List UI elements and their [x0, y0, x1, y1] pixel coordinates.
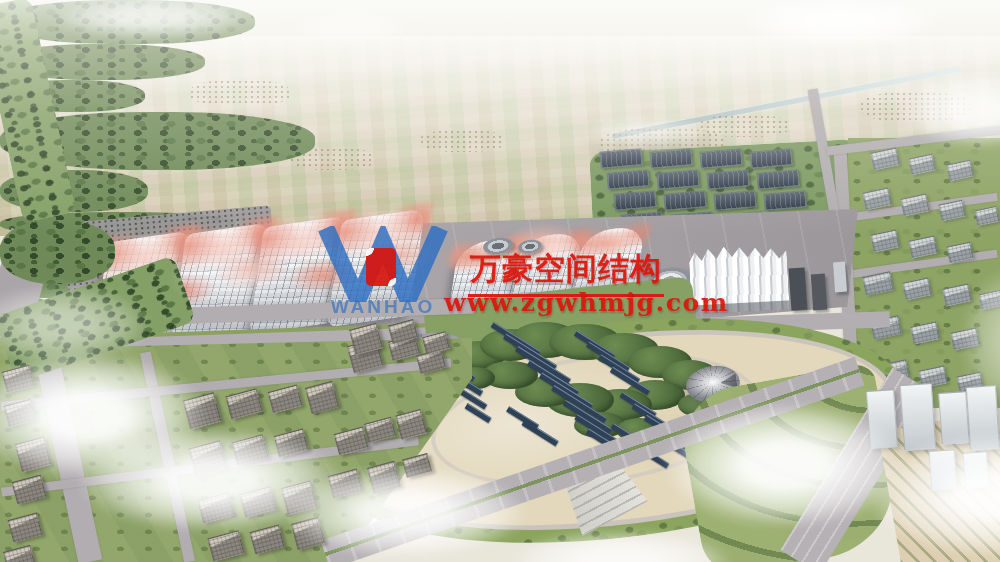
watermark-url-text: www.zgwhmjg.com — [444, 288, 729, 317]
annex-building — [833, 262, 847, 293]
wanhao-logo-watermark: WANHAO — [318, 226, 448, 322]
annex-building — [811, 274, 827, 311]
logo-emblem-icon — [366, 248, 396, 286]
logo-letters: WANHAO — [318, 296, 448, 318]
aerial-masterplan-render: WANHAO 万豪空间结构 www.zgwhmjg.com — [0, 0, 1000, 562]
annex-building — [789, 267, 808, 310]
southeast-grounds — [878, 411, 1000, 562]
